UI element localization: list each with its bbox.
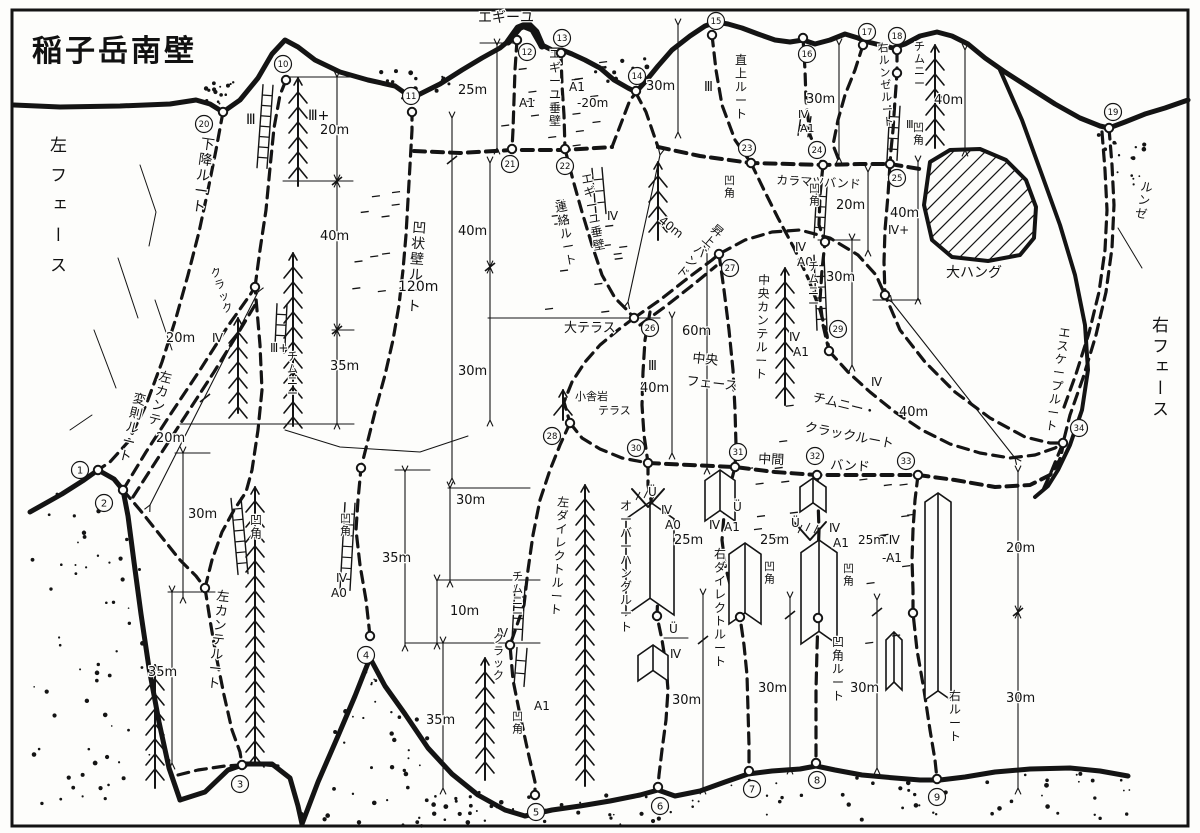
crack-rung xyxy=(343,546,353,547)
topo-label: 凹角 xyxy=(724,174,735,199)
belay-point xyxy=(715,250,723,258)
topo-label: 40m xyxy=(320,229,349,244)
topo-label: 右ルート xyxy=(949,688,961,743)
belay-point xyxy=(632,87,640,95)
topo-label: 30m xyxy=(458,364,487,379)
belay-point xyxy=(821,238,829,246)
belay-point xyxy=(1059,439,1067,447)
topo-label: Ⅳ+ xyxy=(888,223,909,237)
topo-label: エギーユ xyxy=(478,10,534,26)
topo-label: Ⅳ xyxy=(212,331,223,345)
page-title: 稲子岳南壁 xyxy=(32,26,197,70)
belay-point xyxy=(893,46,901,54)
topo-label: 40m xyxy=(899,405,928,420)
belay-point xyxy=(251,283,259,291)
belay-point xyxy=(708,31,716,39)
belay-point xyxy=(94,466,102,474)
belay-point xyxy=(531,791,539,799)
topo-label: 25m xyxy=(674,533,703,548)
belay-point xyxy=(914,471,922,479)
topo-label: Ü xyxy=(733,498,742,514)
route-point-number-text: 6 xyxy=(657,802,663,813)
topo-page: エギーユ下降ルートクラックⅣ左カンテ変則ルート左カンテルート凹角凹状壁ルートⅢⅢ… xyxy=(0,0,1200,833)
belay-point xyxy=(654,783,662,791)
topo-label: テラス xyxy=(598,404,631,417)
topo-label: Ⅳ xyxy=(607,209,618,223)
belay-point xyxy=(201,584,209,592)
belay-point xyxy=(561,145,569,153)
belay-point xyxy=(813,471,821,479)
topo-label: A1 xyxy=(519,96,535,110)
topo-label: 10m xyxy=(450,604,479,619)
route-point-number-text: 16 xyxy=(802,50,813,60)
route-point-number-text: 12 xyxy=(522,48,533,58)
topo-label: 20m xyxy=(156,431,185,446)
route-point-number-text: 19 xyxy=(1108,108,1119,118)
topo-label: 30m xyxy=(646,79,675,94)
belay-point xyxy=(366,632,374,640)
route-point-number-text: 1 xyxy=(77,466,83,477)
topo-label: A1 xyxy=(534,699,550,713)
route-point-number-text: 8 xyxy=(814,776,820,787)
topo-label: Ⅲ xyxy=(704,80,713,95)
belay-point xyxy=(893,69,901,77)
topo-label: 35m xyxy=(382,551,411,566)
route-point-number-text: 23 xyxy=(742,144,753,154)
topo-label: Ⅳ xyxy=(795,240,806,254)
topo-label: 40m xyxy=(640,381,669,396)
topo-label: 凹角 xyxy=(512,710,523,735)
belay-point xyxy=(408,108,416,116)
topo-label: Ⅲ xyxy=(648,359,657,374)
topo-label: 40m xyxy=(934,93,963,108)
belay-point xyxy=(653,612,661,620)
belay-point xyxy=(859,41,867,49)
belay-point xyxy=(557,49,565,57)
route-point-number-text: 5 xyxy=(533,808,539,819)
topo-label: バンド xyxy=(830,458,870,475)
route-point-number-text: 33 xyxy=(901,457,912,467)
crack-rung xyxy=(262,105,272,106)
route-point-number-text: 14 xyxy=(632,72,643,82)
belay-point xyxy=(825,347,833,355)
route-point-number-text: 24 xyxy=(812,146,823,156)
topo-label: A0 xyxy=(665,518,681,532)
belay-point xyxy=(1105,124,1113,132)
belay-point xyxy=(886,160,894,168)
topo-label: 右ダイレクトルート xyxy=(714,546,726,669)
crack-rung xyxy=(261,116,271,117)
topo-label: 30m xyxy=(188,507,217,522)
crack-rung xyxy=(260,126,270,127)
route-point-number-text: 4 xyxy=(363,651,369,662)
topo-label: A1 xyxy=(800,122,815,135)
crack-rung xyxy=(259,137,269,138)
topo-label: 大テラス xyxy=(564,321,616,336)
crack-rung xyxy=(888,138,898,139)
route-point-number-text: 11 xyxy=(406,92,417,102)
topo-label: 小舎岩 xyxy=(575,389,608,403)
belay-point xyxy=(731,463,739,471)
topo-label: -20m xyxy=(577,96,608,110)
crack-rung xyxy=(516,660,526,661)
route-point-number-text: 9 xyxy=(934,793,940,804)
belay-point xyxy=(119,486,127,494)
belay-point xyxy=(736,613,744,621)
topo-label: A1 xyxy=(724,520,740,534)
route-point-number-text: 28 xyxy=(547,432,558,442)
route-point-number-text: 31 xyxy=(733,448,744,458)
belay-point xyxy=(357,464,365,472)
topo-label: Ⅲ+ xyxy=(270,341,288,355)
belay-point xyxy=(238,761,246,769)
belay-point xyxy=(630,314,638,322)
topo-label: 35m xyxy=(426,713,455,728)
topo-label: クラック xyxy=(493,632,504,682)
topo-label: Ⅳ xyxy=(661,503,672,517)
topo-label: Ⅳ xyxy=(670,647,681,661)
route-point-number-text: 10 xyxy=(278,60,289,70)
topo-label: Ü xyxy=(669,620,678,636)
topo-label: 凹角 xyxy=(913,121,924,146)
belay-point xyxy=(644,459,652,467)
topo-label: 30m xyxy=(806,92,835,107)
belay-point xyxy=(745,767,753,775)
topo-label: 30m xyxy=(826,270,855,285)
crack-rung xyxy=(259,147,269,148)
belay-point xyxy=(219,108,227,116)
topo-label: 120m xyxy=(398,279,438,295)
topo-label: チムニー xyxy=(512,570,523,620)
route-point-number-text: 22 xyxy=(560,162,571,172)
belay-point xyxy=(506,641,514,649)
topo-label: 30m xyxy=(1006,691,1035,706)
topo-label: オーバーハングルート xyxy=(620,499,632,634)
topo-label: 35m xyxy=(148,665,177,680)
topo-label: チムニー xyxy=(287,350,298,400)
topo-label: Ü xyxy=(648,483,657,499)
topo-label: 凹角 xyxy=(843,562,854,587)
crack-rung xyxy=(815,217,825,218)
topo-label: -A1 xyxy=(882,551,902,565)
topo-label: Ⅳ xyxy=(829,521,840,535)
topo-label: 30m xyxy=(850,681,879,696)
route-point-number-text: 17 xyxy=(862,28,873,38)
crack-rung xyxy=(815,227,825,228)
topo-label: 60m xyxy=(682,324,711,339)
topo-label: 35m xyxy=(330,359,359,374)
belay-point xyxy=(812,759,820,767)
route-point-number-text: 20 xyxy=(199,120,210,130)
topo-label: 30m xyxy=(456,493,485,508)
route-point-number-text: 26 xyxy=(645,324,656,334)
topo-label: A1 xyxy=(793,345,809,359)
topo-label: Ü xyxy=(791,514,800,530)
topo-label: 25m.Ⅳ xyxy=(858,533,900,547)
route-point-number-text: 15 xyxy=(711,17,722,27)
topo-label: 直上ルート xyxy=(735,53,747,121)
crack-rung xyxy=(888,149,898,150)
crack-rung xyxy=(513,629,523,630)
topo-label: 凹角 xyxy=(809,182,820,207)
topo-label: 30m xyxy=(672,693,701,708)
belay-point xyxy=(881,291,889,299)
belay-point xyxy=(933,775,941,783)
route-point-number-text: 32 xyxy=(810,452,821,462)
route-point-number-text: 34 xyxy=(1074,424,1085,434)
topo-canvas: エギーユ下降ルートクラックⅣ左カンテ変則ルート左カンテルート凹角凹状壁ルートⅢⅢ… xyxy=(0,0,1200,833)
topo-label: A0 xyxy=(331,586,347,600)
topo-label: 凹角 xyxy=(340,512,351,537)
topo-label: Ⅳ xyxy=(709,518,720,532)
topo-label: 25m xyxy=(760,533,789,548)
route-point-number-text: 21 xyxy=(505,160,516,170)
belay-point xyxy=(508,145,516,153)
crack-rung xyxy=(262,95,272,96)
topo-label: 大ハング xyxy=(946,265,1002,281)
topo-label: 40m xyxy=(890,206,919,221)
topo-label: Ⅳ xyxy=(871,375,882,389)
topo-label: 20m xyxy=(320,123,349,138)
route-point-number-text: 3 xyxy=(237,780,243,791)
belay-point xyxy=(747,159,755,167)
belay-point xyxy=(819,161,827,169)
topo-label: Ⅲ xyxy=(246,112,256,128)
topo-label: A1 xyxy=(833,536,849,550)
topo-label: チムニー xyxy=(914,40,925,90)
topo-label: エギーユ垂壁 xyxy=(549,47,561,128)
topo-label: 20m xyxy=(1006,541,1035,556)
route-point-number-text: 25 xyxy=(892,174,903,184)
route-point-number-text: 18 xyxy=(892,32,903,42)
crack-rung xyxy=(341,568,351,569)
route-point-number-text: 2 xyxy=(101,499,107,510)
route-point-number-text: 27 xyxy=(725,264,736,274)
left-face-label: 左フェース xyxy=(44,136,69,286)
topo-label: 凹角 xyxy=(764,560,775,585)
belay-point xyxy=(814,614,822,622)
belay-point xyxy=(909,609,917,617)
crack-rung xyxy=(342,557,352,558)
right-face-label: 右フェース xyxy=(1146,316,1171,421)
topo-label: 中央 xyxy=(692,351,719,369)
route-point-number-text: 29 xyxy=(833,325,844,335)
route-point-number-text: 7 xyxy=(749,785,755,796)
topo-label: 凹角ルート xyxy=(832,635,844,703)
topo-label: 25m xyxy=(458,83,487,98)
belay-point xyxy=(513,36,521,44)
route-point-number-text: 13 xyxy=(557,34,568,44)
topo-label: 40m xyxy=(458,224,487,239)
topo-label: Ⅳ xyxy=(789,330,800,344)
belay-point xyxy=(282,76,290,84)
route-point-number-text: 30 xyxy=(631,444,642,454)
topo-label: 凹角 xyxy=(250,513,262,540)
topo-label: チムニー xyxy=(808,260,819,310)
topo-label: Ⅳ xyxy=(336,571,347,585)
topo-label: 30m xyxy=(758,681,787,696)
topo-label: A1 xyxy=(569,80,585,94)
topo-label: Ⅳ xyxy=(798,108,809,121)
belay-point xyxy=(799,34,807,42)
crack-rung xyxy=(515,673,525,674)
topo-label: Ⅲ+ xyxy=(308,108,329,124)
topo-label: 中間 xyxy=(758,452,785,468)
crack-rung xyxy=(258,157,268,158)
topo-label: 20m xyxy=(166,331,195,346)
topo-label: 20m xyxy=(836,198,865,213)
belay-point xyxy=(566,419,574,427)
